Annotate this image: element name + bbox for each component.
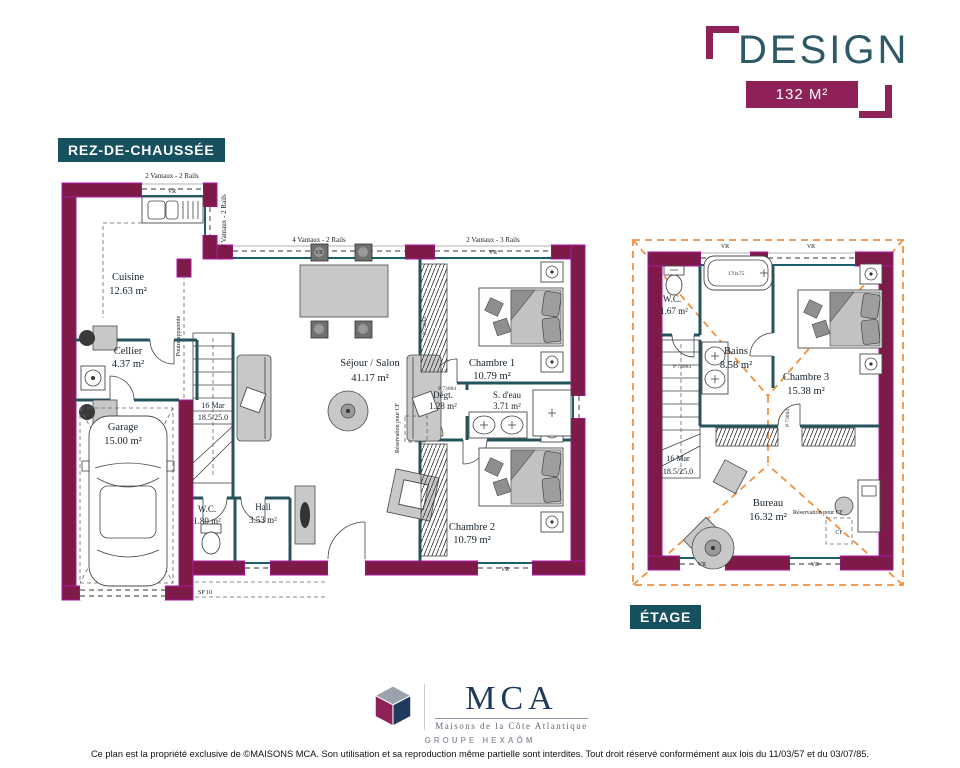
upper-floor-label: ÉTAGE: [630, 605, 701, 629]
cf-box-label: CF: [835, 530, 843, 536]
room-area: 12.63 m²: [109, 286, 147, 297]
window-label: 2 Vantaux - 2 Rails: [220, 194, 228, 248]
brand-text-block: MCA Maisons de la Côte Atlantique: [435, 682, 587, 731]
brand-group: GROUPE HEXAÔM: [424, 736, 535, 745]
room-area: 8.58 m²: [720, 360, 752, 371]
kitchen-bar-chairs: [79, 223, 142, 424]
window-label: 2 Vantaux - 2 Rails: [145, 172, 199, 180]
brand-subtitle: Maisons de la Côte Atlantique: [435, 718, 587, 731]
cf-reservation-label: Réservation pour CF: [793, 510, 844, 516]
window-vr: VR: [501, 567, 509, 573]
room-label: Bains: [724, 346, 748, 357]
room-area: 4.37 m²: [112, 359, 144, 370]
window-label: 4 Vantaux - 2 Rails: [292, 236, 346, 244]
room-area: 10.79 m²: [453, 535, 491, 546]
door-ref: P 73084: [422, 317, 428, 335]
brand-row: MCA Maisons de la Côte Atlantique: [372, 682, 587, 731]
tv-unit: [295, 486, 315, 544]
room-area: 1.67 m²: [660, 306, 688, 316]
room-label: Hall: [255, 502, 271, 512]
area-badge: 132 M²: [746, 81, 858, 108]
window-vr: VR: [807, 244, 815, 250]
window-vr: VR: [315, 250, 323, 256]
garage-car: [80, 408, 174, 586]
window-vr: VR: [698, 562, 706, 568]
mca-cube-logo-icon: [372, 684, 414, 730]
room-area: 15.00 m²: [104, 436, 142, 447]
kitchen-counter: [142, 197, 203, 223]
cf-reservation-label: Réservation pour CF: [395, 402, 401, 453]
door-ref: P 73084: [438, 386, 456, 392]
room-area: 1.28 m²: [429, 401, 457, 411]
bedroom2-furniture: [421, 422, 563, 556]
room-area: 3.53 m²: [249, 515, 277, 525]
room-area: 10.79 m²: [473, 371, 511, 382]
room-label: Chambre 1: [469, 358, 515, 369]
brand-footer: MCA Maisons de la Côte Atlantique GROUPE…: [0, 682, 960, 745]
window-vr: VR: [489, 250, 497, 256]
window-vr: VR: [168, 189, 176, 195]
window-label: 2 Vantaux - 3 Rails: [466, 236, 520, 244]
ground-floor-plan: Cuisine 12.63 m² Cellier 4.37 m² Garage …: [55, 168, 620, 613]
room-label: Garage: [108, 422, 139, 433]
bracket-top-left-icon: [706, 26, 739, 59]
room-label: Chambre 2: [449, 522, 495, 533]
room-area: 3.71 m²: [493, 401, 521, 411]
stairs-dims: 18.5/25.0: [663, 467, 693, 476]
brand-name: MCA: [465, 682, 557, 716]
ground-floor-label: REZ-DE-CHAUSSÉE: [58, 138, 225, 162]
sofa-left: [237, 355, 271, 441]
copyright-notice: Ce plan est la propriété exclusive de ©M…: [0, 749, 960, 759]
room-label: S. d'eau: [493, 390, 522, 400]
entry-step-label: SP 10: [198, 590, 212, 596]
room-label: W.C.: [198, 504, 216, 514]
room-area: 15.38 m²: [787, 386, 825, 397]
stairs-label: 16 Mar: [666, 454, 690, 463]
room-label: Séjour / Salon: [340, 358, 400, 369]
stairs-dims: 18.5/25.0: [198, 413, 228, 422]
bathtub-size-label: 170x75: [728, 271, 745, 277]
coffee-table: [328, 391, 368, 431]
room-label: Chambre 3: [783, 372, 829, 383]
room-area: 41.17 m²: [351, 373, 389, 384]
window-vr: VR: [811, 562, 819, 568]
design-header: DESIGN 132 M²: [698, 24, 898, 118]
room-area: 16.32 m²: [749, 512, 787, 523]
wc-toilet: [201, 524, 221, 554]
door-ref: P 73084: [785, 409, 791, 427]
room-label: W.C.: [663, 294, 681, 304]
floor-plan-document: DESIGN 132 M² REZ-DE-CHAUSSÉE ÉTAGE: [0, 0, 960, 768]
room-label: Bureau: [753, 498, 784, 509]
logo-divider: [424, 684, 425, 730]
cellier-washer: [81, 366, 105, 390]
stairs-label: 16 Mar: [201, 401, 225, 410]
window-vr: VR: [721, 244, 729, 250]
bedroom1-furniture: [421, 262, 563, 372]
room-area: 1.80 m²: [193, 516, 221, 526]
upper-floor-plan: W.C. 1.67 m² Bains 8.58 m² Chambre 3 15.…: [618, 228, 918, 603]
room-label: Cuisine: [112, 272, 144, 283]
room-label: Cellier: [114, 346, 143, 357]
door-ref: P 73084: [673, 364, 691, 370]
beam-label: Poutre apparente: [176, 315, 182, 356]
plan-title: DESIGN: [738, 28, 909, 73]
bracket-bottom-right-icon: [859, 85, 892, 118]
upper-wc-toilet: [664, 266, 684, 295]
ground-annotations: [184, 275, 427, 597]
